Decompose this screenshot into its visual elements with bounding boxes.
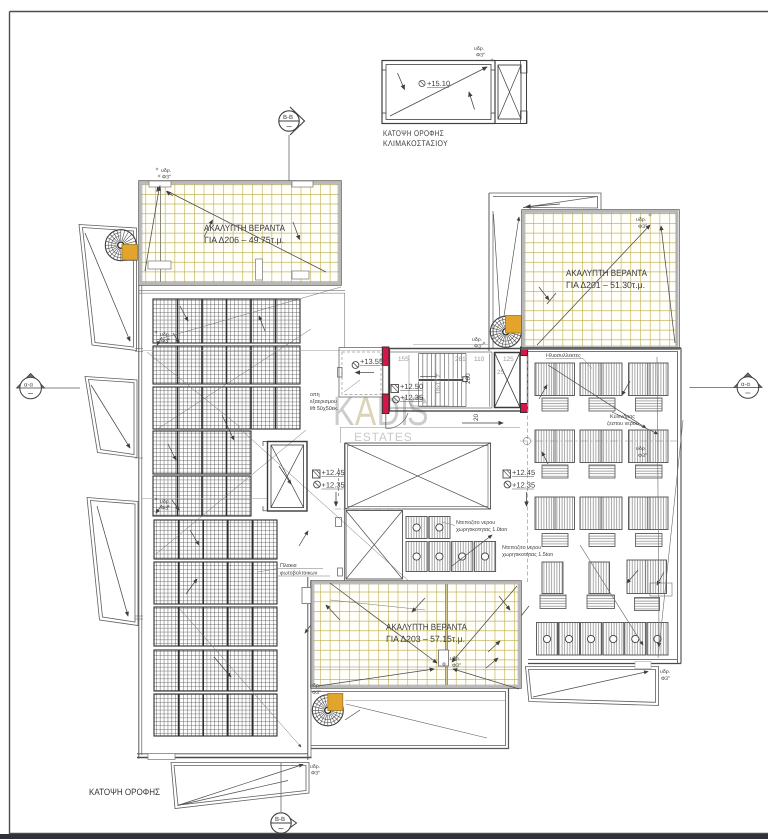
svg-text:+13.55: +13.55 bbox=[360, 357, 383, 366]
svg-text:α-α: α-α bbox=[24, 383, 33, 389]
svg-text:+12.45: +12.45 bbox=[512, 468, 535, 477]
svg-text:Φ3″: Φ3″ bbox=[312, 690, 321, 696]
svg-text:υδρ.: υδρ. bbox=[660, 669, 670, 675]
svg-text:υδρ.: υδρ. bbox=[310, 683, 320, 689]
svg-text:Φ3″: Φ3″ bbox=[661, 676, 670, 682]
svg-text:υδρ.: υδρ. bbox=[310, 764, 320, 770]
svg-text:ΚΛΙΜΑΚΟΣΤΑΣΙΟΥ: ΚΛΙΜΑΚΟΣΤΑΣΙΟΥ bbox=[383, 139, 448, 148]
svg-text:Φ3″: Φ3″ bbox=[452, 663, 461, 669]
svg-text:εξαερισμου: εξαερισμου bbox=[310, 399, 337, 405]
svg-text:ΚΑΤΟΨΗ ΟΡΟΦΗΣ: ΚΑΤΟΨΗ ΟΡΟΦΗΣ bbox=[89, 787, 160, 797]
svg-text:155: 155 bbox=[398, 356, 409, 363]
svg-text:υδρ.: υδρ. bbox=[472, 337, 482, 343]
svg-text:Φ3″: Φ3″ bbox=[638, 453, 647, 459]
svg-text:υδρ.: υδρ. bbox=[450, 656, 460, 662]
svg-text:ΑΚΑΛΥΠΤΗ ΒΕΡΑΝΤΑ: ΑΚΑΛΥΠΤΗ ΒΕΡΑΝΤΑ bbox=[566, 268, 647, 278]
svg-text:281: 281 bbox=[455, 356, 466, 363]
svg-text:Φ3″: Φ3″ bbox=[311, 771, 320, 777]
svg-text:+12.45: +12.45 bbox=[322, 468, 345, 477]
svg-text:υδρ.: υδρ. bbox=[636, 217, 646, 223]
svg-text:20: 20 bbox=[473, 413, 480, 421]
svg-text:υδρ.: υδρ. bbox=[161, 168, 171, 174]
svg-text:υδρ.: υδρ. bbox=[160, 332, 170, 338]
svg-text:Β-Β: Β-Β bbox=[275, 816, 285, 823]
svg-text:ΑΚΑΛΥΠΤΗ ΒΕΡΑΝΤΑ: ΑΚΑΛΥΠΤΗ ΒΕΡΑΝΤΑ bbox=[386, 622, 467, 632]
svg-text:υδρ.: υδρ. bbox=[160, 499, 170, 505]
svg-text:υδρ.: υδρ. bbox=[636, 446, 646, 452]
svg-text:ζεστου νερου: ζεστου νερου bbox=[607, 421, 639, 427]
svg-text:lift 50χ50εκ.: lift 50χ50εκ. bbox=[310, 406, 338, 412]
svg-text:Φ3″: Φ3″ bbox=[476, 53, 485, 59]
svg-text:ESTATES: ESTATES bbox=[354, 430, 413, 444]
svg-text:α-α: α-α bbox=[741, 382, 750, 388]
svg-text:A: A bbox=[355, 388, 377, 434]
svg-text:ΑΚΑΛΥΠΤΗ ΒΕΡΑΝΤΑ: ΑΚΑΛΥΠΤΗ ΒΕΡΑΝΤΑ bbox=[204, 223, 285, 233]
svg-text:χωρητικοτητας 1.0ton: χωρητικοτητας 1.0ton bbox=[456, 527, 507, 533]
svg-text:ΓΙΑ Δ201 – 51.30τ.μ.: ΓΙΑ Δ201 – 51.30τ.μ. bbox=[566, 280, 645, 290]
svg-text:+12.35: +12.35 bbox=[322, 481, 345, 490]
svg-text:ΓΙΑ Δ206 – 49.75τ.μ.: ΓΙΑ Δ206 – 49.75τ.μ. bbox=[204, 235, 284, 245]
svg-text:Φ3″: Φ3″ bbox=[638, 224, 647, 230]
svg-text:Φ3″: Φ3″ bbox=[162, 175, 171, 181]
svg-text:οπη: οπη bbox=[310, 392, 320, 398]
svg-text:Ντεποζιτο νερου: Ντεποζιτο νερου bbox=[456, 520, 495, 526]
svg-text:Ντεποζιτο νερου: Ντεποζιτο νερου bbox=[502, 545, 541, 551]
svg-text:υδρ.: υδρ. bbox=[474, 46, 484, 52]
svg-text:ΓΙΑ Δ203 – 57.15τ.μ.: ΓΙΑ Δ203 – 57.15τ.μ. bbox=[386, 634, 465, 644]
svg-text:+15.10: +15.10 bbox=[427, 79, 450, 88]
svg-text:Ηλιοσυλλεκτες: Ηλιοσυλλεκτες bbox=[546, 353, 581, 359]
svg-text:Πλακια: Πλακια bbox=[280, 563, 297, 569]
svg-text:18x17.2: 18x17.2 bbox=[436, 374, 442, 394]
svg-text:110: 110 bbox=[474, 356, 485, 363]
svg-text:125: 125 bbox=[503, 356, 514, 363]
svg-text:χωρητικοτητας 1.5ton: χωρητικοτητας 1.5ton bbox=[502, 552, 553, 558]
svg-text:+12.35: +12.35 bbox=[512, 481, 535, 490]
svg-text:Β-Β: Β-Β bbox=[283, 114, 293, 121]
svg-text:260: 260 bbox=[465, 373, 472, 384]
svg-text:+12.35: +12.35 bbox=[400, 393, 423, 402]
svg-text:ΚΑΤΟΨΗ ΟΡΟΦΗΣ: ΚΑΤΟΨΗ ΟΡΟΦΗΣ bbox=[383, 129, 444, 138]
svg-text:+12.50: +12.50 bbox=[400, 382, 423, 391]
svg-text:φωτοβολταικων: φωτοβολταικων bbox=[280, 571, 318, 577]
